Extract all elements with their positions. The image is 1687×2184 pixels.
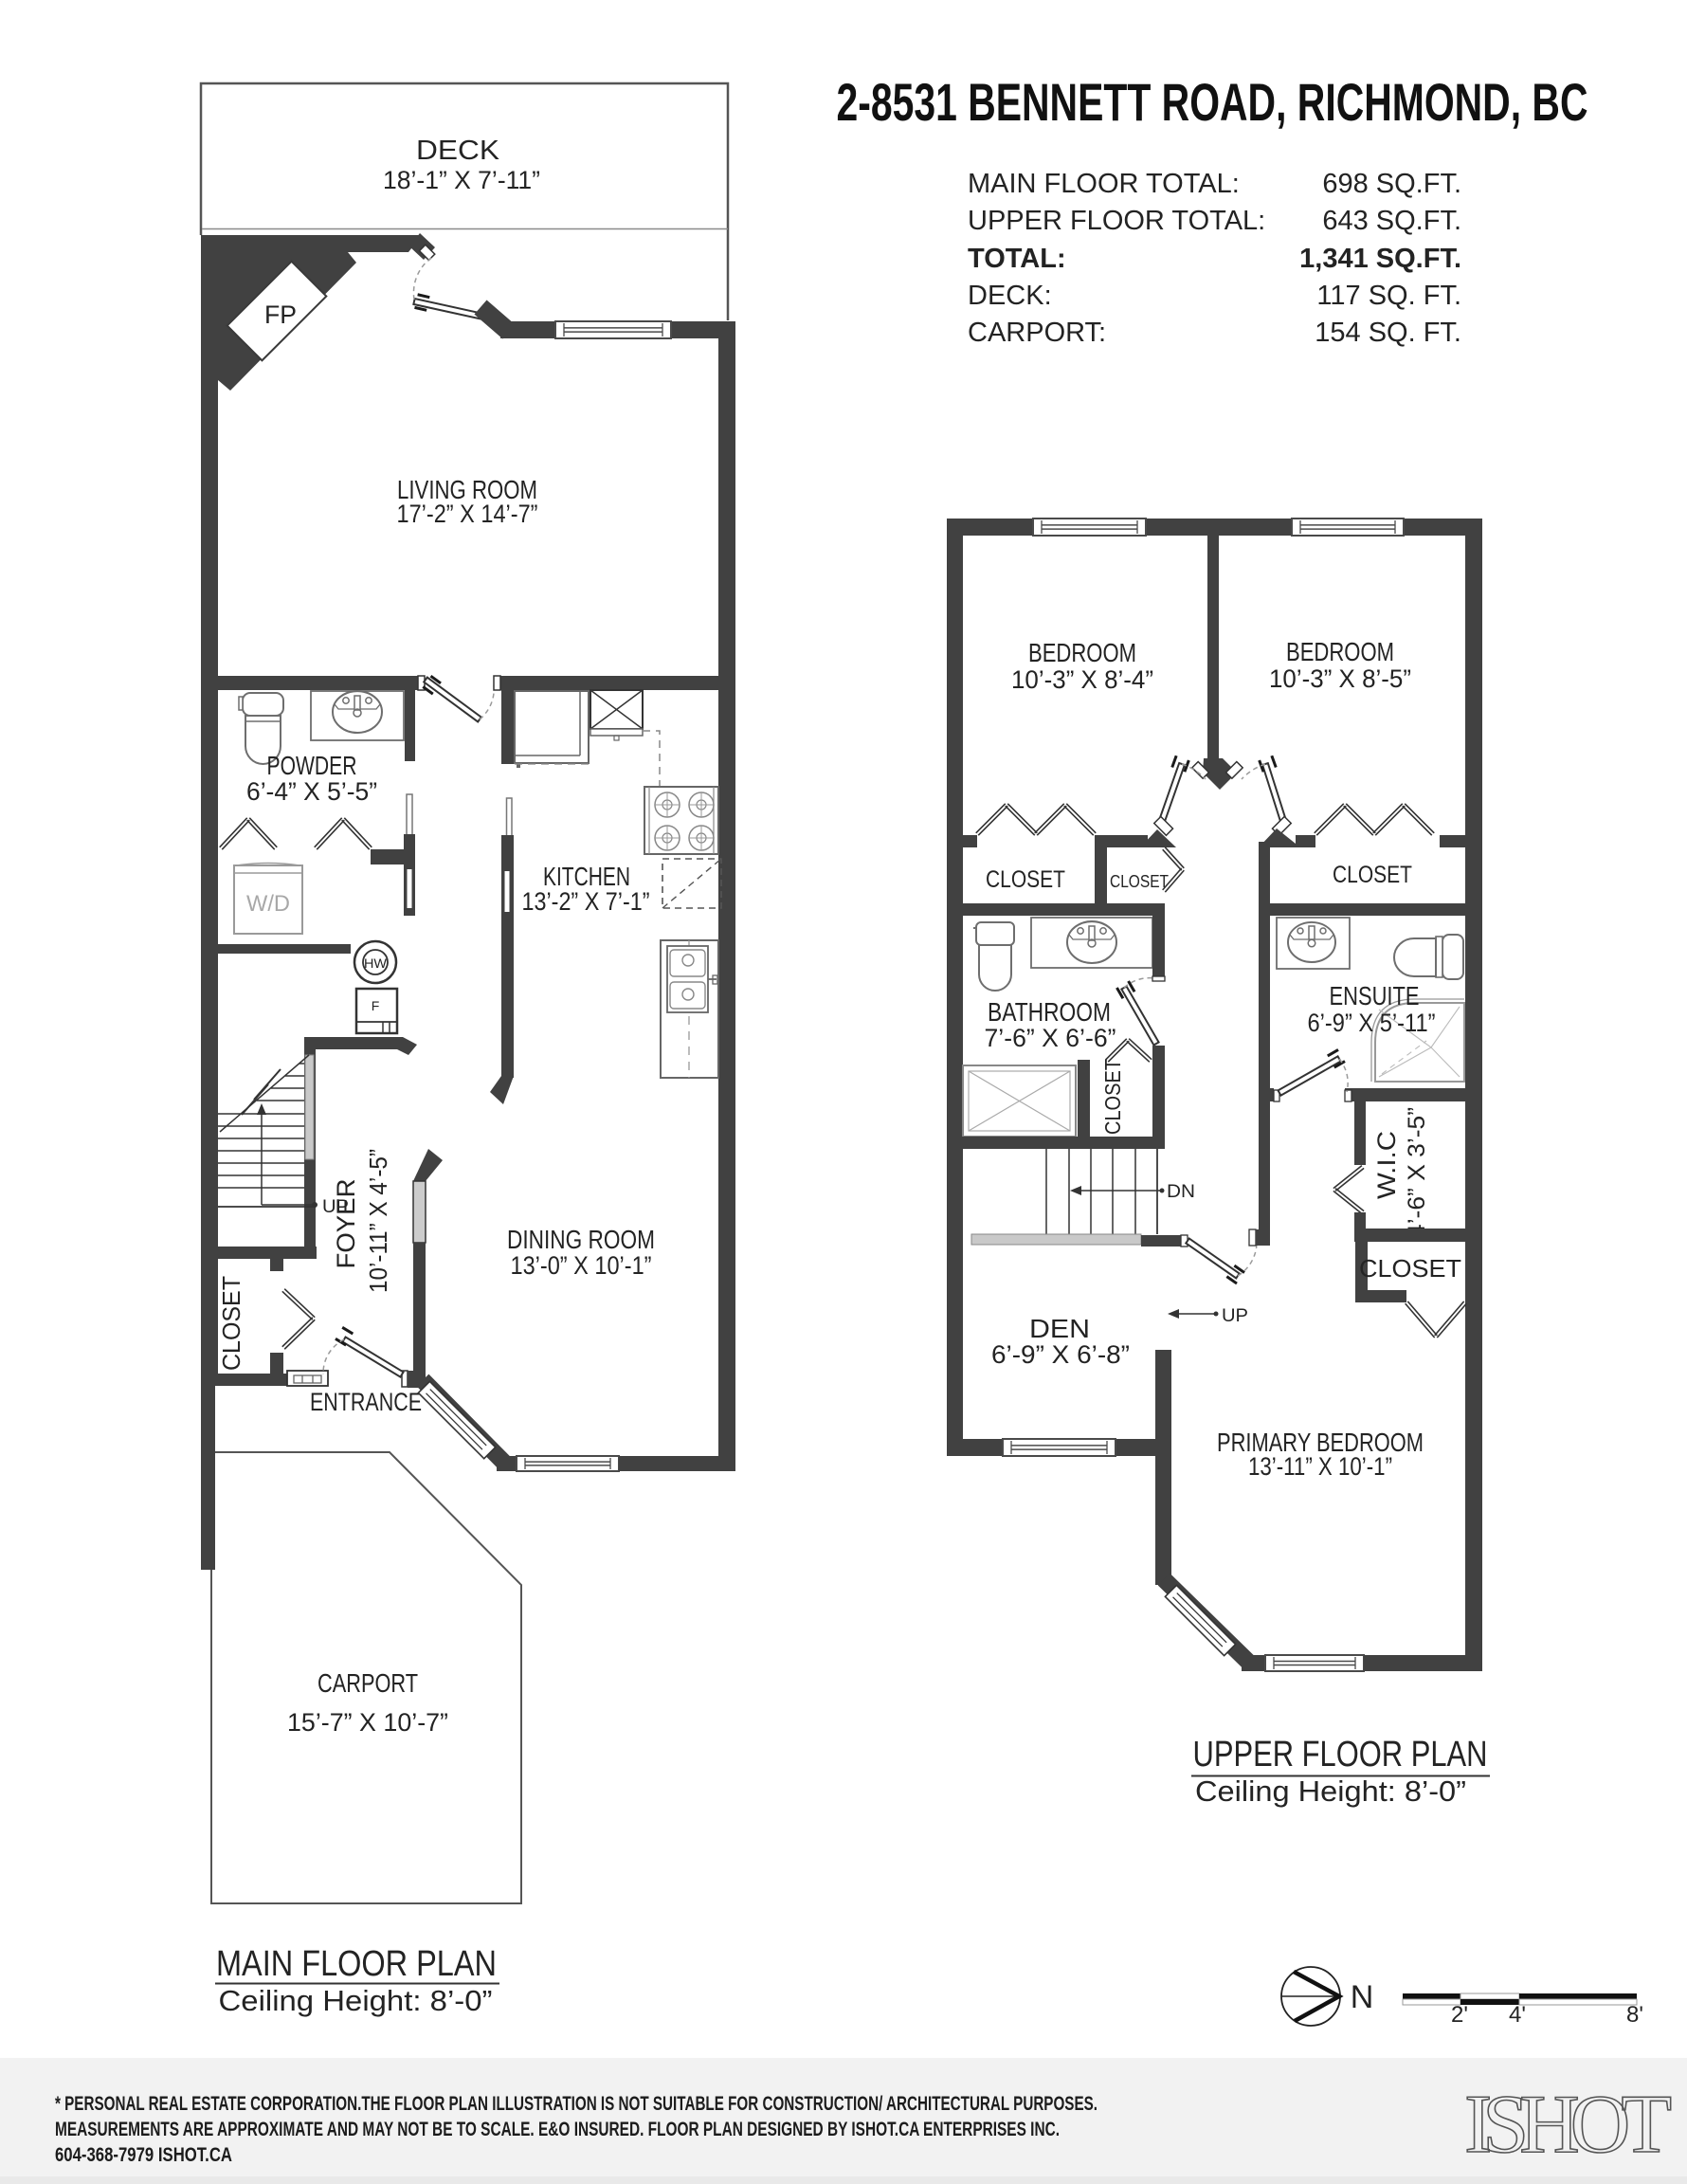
svg-text:10’-11” X 4’-5”: 10’-11” X 4’-5”: [364, 1149, 392, 1293]
svg-text:10’-3” X 8’-4”: 10’-3” X 8’-4”: [1011, 665, 1153, 694]
svg-text:1,341 SQ.FT.: 1,341 SQ.FT.: [1299, 244, 1461, 274]
svg-text:8': 8': [1626, 2002, 1643, 2028]
svg-text:F: F: [372, 998, 380, 1013]
svg-text:* PERSONAL REAL ESTATE CORPORA: * PERSONAL REAL ESTATE CORPORATION.THE F…: [55, 2093, 1097, 2115]
svg-text:6’-9” X 5’-11”: 6’-9” X 5’-11”: [1308, 1009, 1436, 1037]
svg-text:CLOSET: CLOSET: [1359, 1254, 1461, 1283]
svg-text:CLOSET: CLOSET: [217, 1276, 245, 1371]
svg-text:15’-7” X 10’-7”: 15’-7” X 10’-7”: [287, 1708, 448, 1737]
svg-text:W.I.C: W.I.C: [1372, 1131, 1401, 1199]
svg-text:ENTRANCE: ENTRANCE: [310, 1388, 422, 1416]
svg-text:W/D: W/D: [246, 891, 290, 917]
svg-text:4’-6” X 3’-5”: 4’-6” X 3’-5”: [1404, 1107, 1430, 1238]
svg-text:UPPER FLOOR PLAN: UPPER FLOOR PLAN: [1193, 1735, 1488, 1774]
svg-text:6’-4” X 5’-5”: 6’-4” X 5’-5”: [246, 777, 377, 806]
svg-text:FP: FP: [264, 300, 297, 329]
svg-text:DN: DN: [1167, 1182, 1195, 1202]
svg-text:DECK:: DECK:: [968, 281, 1052, 311]
svg-text:FOYER: FOYER: [332, 1179, 360, 1269]
svg-text:DINING ROOM: DINING ROOM: [507, 1225, 655, 1254]
svg-text:HW: HW: [364, 955, 388, 971]
svg-text:604-368-7979 ISHOT.CA: 604-368-7979 ISHOT.CA: [55, 2144, 232, 2166]
svg-text:13’-2” X 7’-1”: 13’-2” X 7’-1”: [522, 887, 650, 916]
svg-text:10’-3” X 8’-5”: 10’-3” X 8’-5”: [1269, 664, 1411, 693]
svg-text:Ceiling Height: 8’-0”: Ceiling Height: 8’-0”: [1195, 1774, 1466, 1808]
svg-text:13’-0” X 10’-1”: 13’-0” X 10’-1”: [511, 1251, 652, 1280]
svg-text:ENSUITE: ENSUITE: [1330, 981, 1420, 1010]
svg-text:13’-11” X 10’-1”: 13’-11” X 10’-1”: [1248, 1452, 1392, 1481]
svg-text:643 SQ.FT.: 643 SQ.FT.: [1322, 206, 1461, 236]
svg-text:MEASUREMENTS ARE APPROXIMATE A: MEASUREMENTS ARE APPROXIMATE AND MAY NOT…: [55, 2119, 1060, 2140]
svg-text:CLOSET: CLOSET: [1333, 862, 1412, 888]
svg-text:6’-9” X 6’-8”: 6’-9” X 6’-8”: [991, 1340, 1130, 1369]
svg-text:UPPER FLOOR TOTAL:: UPPER FLOOR TOTAL:: [968, 206, 1265, 236]
svg-text:BEDROOM: BEDROOM: [1286, 637, 1394, 666]
svg-text:CLOSET: CLOSET: [1100, 1059, 1125, 1135]
svg-text:CLOSET: CLOSET: [1110, 872, 1169, 891]
svg-text:TOTAL:: TOTAL:: [968, 244, 1066, 274]
svg-text:154 SQ. FT.: 154 SQ. FT.: [1315, 318, 1461, 348]
svg-text:CLOSET: CLOSET: [986, 866, 1065, 893]
svg-text:117 SQ. FT.: 117 SQ. FT.: [1316, 281, 1461, 311]
svg-text:BATHROOM: BATHROOM: [988, 997, 1111, 1027]
svg-text:POWDER: POWDER: [267, 751, 357, 780]
svg-text:UP: UP: [1222, 1306, 1248, 1326]
svg-text:7’-6” X 6’-6”: 7’-6” X 6’-6”: [985, 1024, 1116, 1052]
svg-text:2-8531 BENNETT ROAD, RICHMOND,: 2-8531 BENNETT ROAD, RICHMOND, BC: [837, 72, 1588, 132]
svg-text:Ceiling Height: 8’-0”: Ceiling Height: 8’-0”: [219, 1984, 493, 2017]
svg-text:4': 4': [1509, 2002, 1526, 2028]
svg-text:2': 2': [1451, 2002, 1468, 2028]
svg-text:18’-1” X 7’-11”: 18’-1” X 7’-11”: [383, 166, 540, 194]
svg-text:MAIN FLOOR PLAN: MAIN FLOOR PLAN: [216, 1944, 497, 1984]
svg-text:BEDROOM: BEDROOM: [1028, 638, 1136, 667]
svg-text:698 SQ.FT.: 698 SQ.FT.: [1322, 169, 1461, 199]
svg-text:DECK: DECK: [416, 136, 500, 166]
svg-text:ISHOT: ISHOT: [1464, 2079, 1671, 2171]
svg-text:DEN: DEN: [1029, 1314, 1090, 1343]
svg-text:MAIN FLOOR TOTAL:: MAIN FLOOR TOTAL:: [968, 169, 1240, 199]
svg-text:N: N: [1351, 1979, 1374, 2015]
svg-text:CARPORT:: CARPORT:: [968, 318, 1106, 348]
svg-text:17’-2” X 14’-7”: 17’-2” X 14’-7”: [397, 500, 538, 528]
svg-text:CARPORT: CARPORT: [317, 1668, 418, 1698]
